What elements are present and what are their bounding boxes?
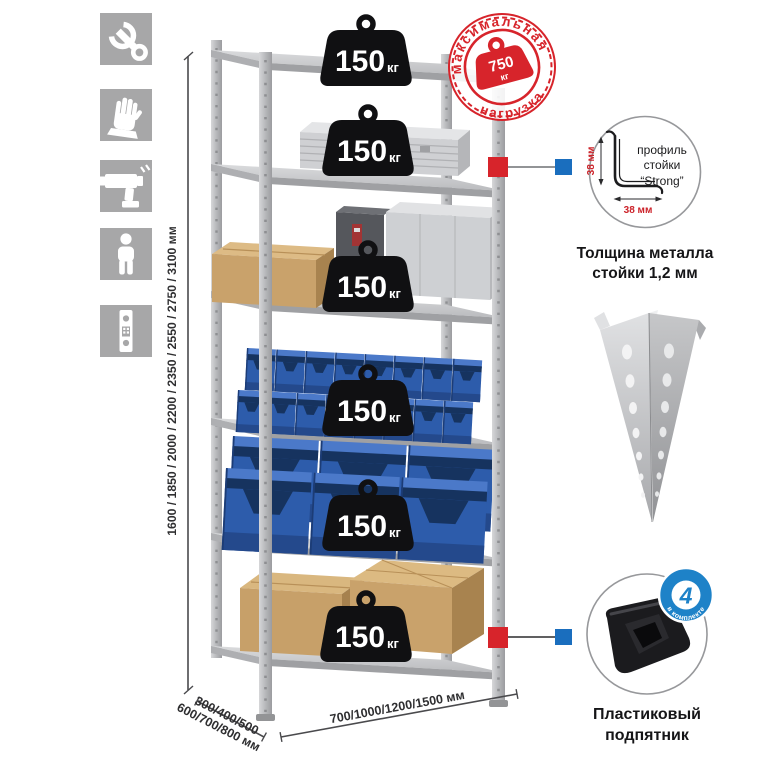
height-dimension xyxy=(184,52,193,694)
blue-marker xyxy=(555,629,572,645)
red-marker xyxy=(488,627,508,648)
kit-badge-value: 4 xyxy=(679,583,693,609)
profile-label-line3: “Strong” xyxy=(640,174,683,188)
profile-detail-callout: 38 мм 38 мм профиль стойки “Strong” Толщ… xyxy=(577,117,714,283)
profile-dim-horizontal: 38 мм xyxy=(624,205,653,216)
foot-caption-line2: подпятник xyxy=(605,727,690,744)
profile-label-line1: профиль xyxy=(637,143,687,157)
foot-caption-line1: Пластиковый xyxy=(593,706,701,723)
height-dimension-label: 1600 / 1850 / 2000 / 2200 / 2350 / 2550 … xyxy=(165,226,179,535)
foot-detail-callout: в комплекте 4 Пластиковый подпятник xyxy=(587,568,713,744)
gloves-icon xyxy=(100,89,152,141)
upright-profile-image xyxy=(594,310,706,522)
drill-icon xyxy=(94,160,152,212)
profile-callout-markers xyxy=(488,157,572,177)
red-marker xyxy=(488,157,508,177)
wrench-icon xyxy=(100,13,152,65)
shelving-rack-infographic: 150 кг xyxy=(0,0,765,765)
profile-caption-line2: стойки 1,2 мм xyxy=(592,265,697,282)
profile-label-line2: стойки xyxy=(644,158,681,172)
width-dimension xyxy=(280,689,518,742)
foot-callout-markers xyxy=(488,627,572,648)
kit-count-badge: в комплекте 4 xyxy=(659,568,713,622)
depth-dimension-label: 300/400/500 600/700/800 мм xyxy=(175,688,269,754)
profile-dim-vertical: 38 мм xyxy=(586,147,597,176)
cardboard-box xyxy=(212,242,334,308)
rack-post-icon xyxy=(100,305,152,357)
blue-marker xyxy=(555,159,572,175)
profile-caption-line1: Толщина металла xyxy=(577,245,714,262)
max-load-stamp: максимальная нагрузка 750 кг xyxy=(437,2,567,133)
feature-icons-panel xyxy=(94,13,152,357)
person-icon xyxy=(100,228,152,280)
